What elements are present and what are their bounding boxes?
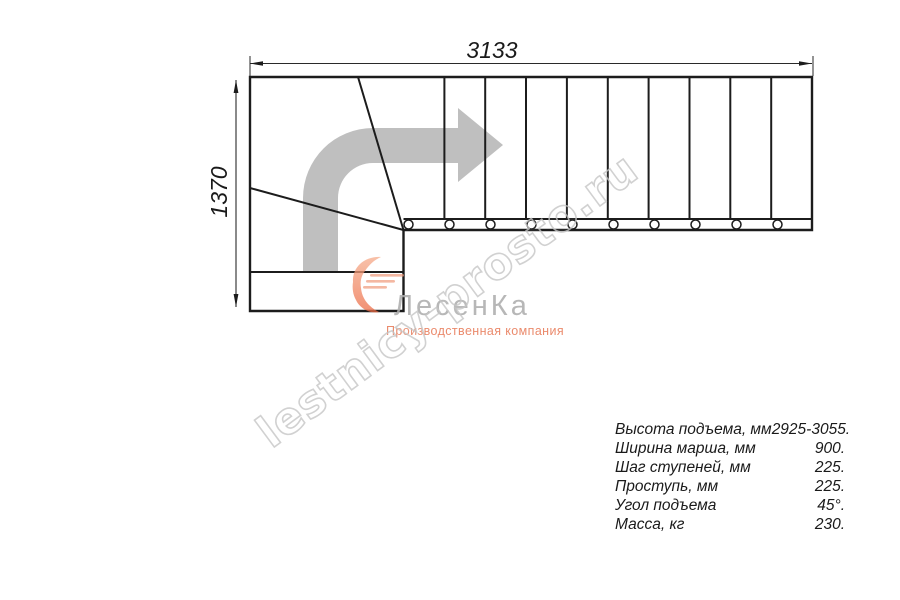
baluster-circle: [732, 220, 741, 229]
staircase-drawing-page: { "drawing": { "width_label": "3133", "h…: [0, 0, 900, 600]
spec-row: Угол подъема45°.: [615, 496, 845, 515]
dimension-width-label: 3133: [466, 37, 517, 63]
baluster-circle: [445, 220, 454, 229]
company-logo: ЛесенКа Производственная компания: [348, 252, 578, 347]
spec-row: Ширина марша, мм900.: [615, 439, 845, 458]
spec-label: Угол подъема: [615, 496, 716, 515]
spec-row: Проступь, мм225.: [615, 477, 845, 496]
logo-tagline: Производственная компания: [386, 324, 564, 338]
baluster-circle: [773, 220, 782, 229]
spec-value: 225.: [815, 458, 845, 477]
baluster-circle: [650, 220, 659, 229]
dim-arrow-down-icon: [234, 294, 239, 307]
dimension-height-label: 1370: [206, 166, 232, 217]
specs-table: Высота подъема, мм2925-3055.Ширина марша…: [615, 420, 845, 534]
dim-arrow-up-icon: [234, 80, 239, 93]
spec-value: 225.: [815, 477, 845, 496]
dim-arrow-right-icon: [799, 61, 812, 66]
baluster-circles: [404, 220, 782, 229]
spec-row: Шаг ступеней, мм225.: [615, 458, 845, 477]
baluster-circle: [486, 220, 495, 229]
spec-row: Высота подъема, мм2925-3055.: [615, 420, 845, 439]
dimension-width: 3133: [250, 37, 813, 76]
spec-label: Высота подъема, мм: [615, 420, 772, 439]
spec-value: 2925-3055.: [772, 420, 850, 439]
spec-label: Проступь, мм: [615, 477, 718, 496]
spec-value: 900.: [815, 439, 845, 458]
dim-arrow-left-icon: [250, 61, 263, 66]
baluster-circle: [609, 220, 618, 229]
spec-label: Масса, кг: [615, 515, 684, 534]
baluster-circle: [568, 220, 577, 229]
spec-label: Шаг ступеней, мм: [615, 458, 751, 477]
spec-row: Масса, кг230.: [615, 515, 845, 534]
baluster-circle: [691, 220, 700, 229]
dimension-height: 1370: [206, 80, 238, 307]
baluster-circle: [527, 220, 536, 229]
logo-company-name: ЛесенКа: [394, 290, 530, 323]
spec-value: 45°.: [817, 496, 845, 515]
baluster-circle: [404, 220, 413, 229]
spec-value: 230.: [815, 515, 845, 534]
spec-label: Ширина марша, мм: [615, 439, 756, 458]
